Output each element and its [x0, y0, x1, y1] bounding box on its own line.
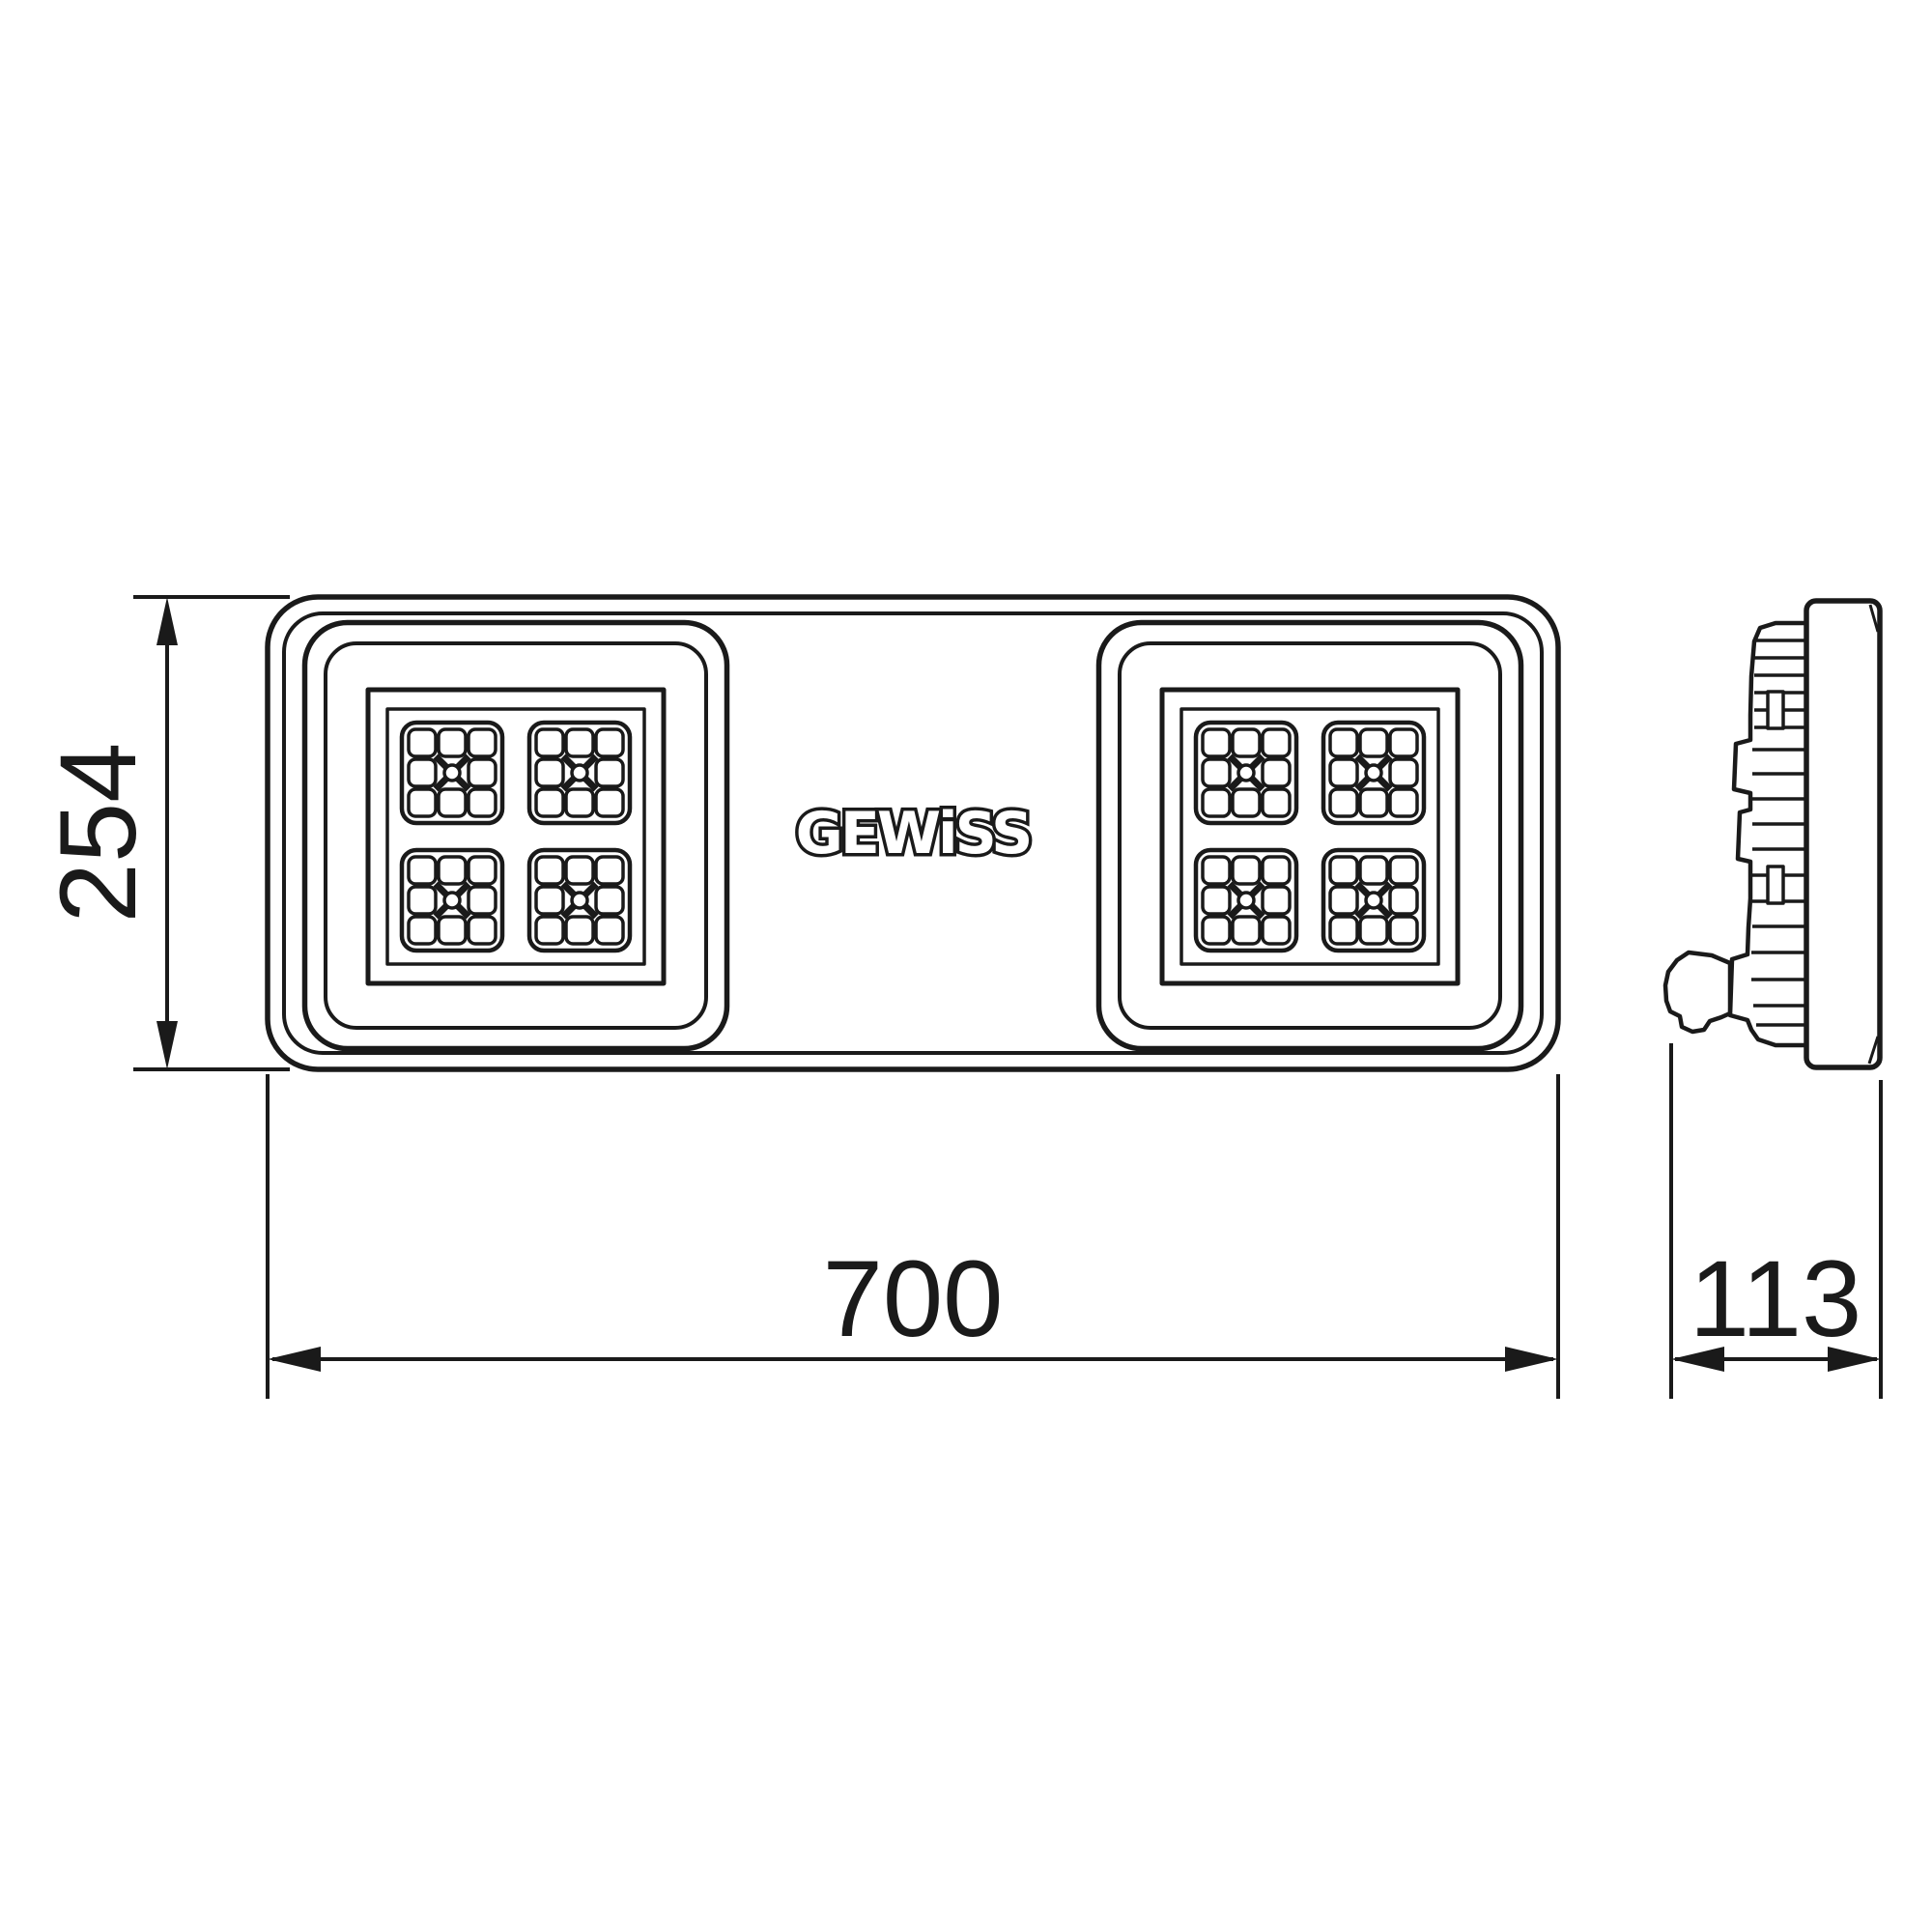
width-dimension: 700 — [268, 1074, 1558, 1399]
height-arrow-down — [156, 1021, 178, 1069]
width-dimension-label: 700 — [823, 1238, 1004, 1359]
depth-dimension: 113 — [1671, 1043, 1881, 1399]
depth-dimension-label: 113 — [1690, 1238, 1862, 1359]
heatsink-notch-lower — [1768, 867, 1783, 903]
width-arrow-left — [268, 1347, 321, 1372]
technical-drawing-page: GEWiSS 254 700 113 — [0, 0, 1932, 1932]
height-dimension: 254 — [38, 597, 290, 1069]
heatsink-notch-upper — [1768, 692, 1783, 728]
cable-gland — [1665, 952, 1730, 1032]
width-arrow-right — [1505, 1347, 1558, 1372]
heatsink-body — [1730, 623, 1808, 1045]
height-arrow-up — [156, 597, 178, 645]
height-dimension-label: 254 — [38, 743, 158, 923]
side-front-panel — [1806, 601, 1880, 1067]
side-view — [1665, 601, 1880, 1067]
front-view: GEWiSS — [268, 597, 1558, 1069]
led-module-right — [1099, 623, 1521, 1049]
led-module-left — [305, 623, 727, 1049]
floodlight-dimension-drawing: GEWiSS 254 700 113 — [0, 0, 1932, 1932]
brand-logo-text: GEWiSS — [796, 800, 1031, 867]
